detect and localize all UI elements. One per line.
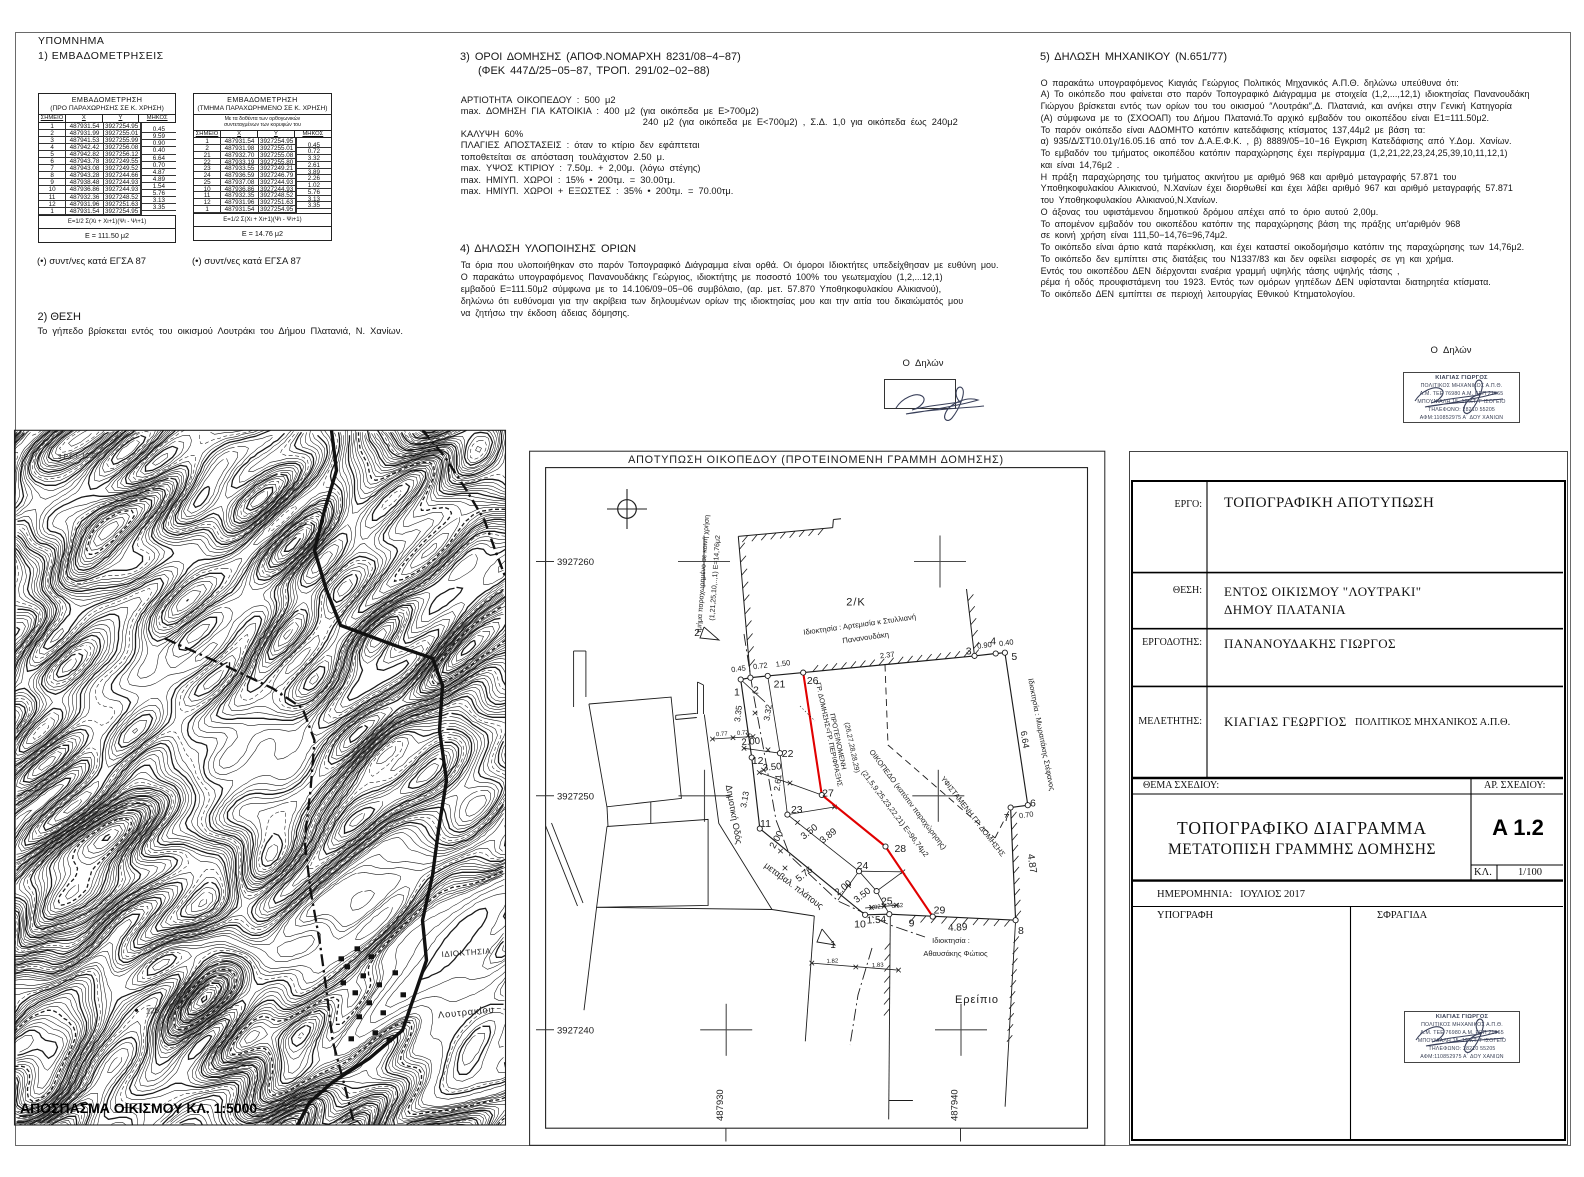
svg-text:2.61: 2.61 xyxy=(772,774,784,792)
svg-text:3927260: 3927260 xyxy=(557,557,594,568)
svg-text:Ερείπιο: Ερείπιο xyxy=(955,994,999,1006)
svg-text:0.72: 0.72 xyxy=(752,661,768,672)
svg-text:Λουτρακίου: Λουτρακίου xyxy=(437,1004,495,1021)
svg-text:3: 3 xyxy=(966,645,972,657)
svg-text:4.89: 4.89 xyxy=(948,922,968,934)
svg-text:0.45: 0.45 xyxy=(731,663,747,674)
svg-text:23: 23 xyxy=(791,804,803,816)
svg-text:3927250: 3927250 xyxy=(557,791,594,802)
svg-text:0.77: 0.77 xyxy=(716,731,729,738)
svg-text:Ιδιοκτησία :: Ιδιοκτησία : xyxy=(932,936,970,945)
svg-text:0.90: 0.90 xyxy=(977,640,993,651)
svg-text:8: 8 xyxy=(1018,925,1024,937)
svg-text:27: 27 xyxy=(822,788,834,800)
svg-text:9: 9 xyxy=(909,918,915,930)
svg-text:1.50: 1.50 xyxy=(775,658,791,669)
svg-text:3.50: 3.50 xyxy=(799,822,820,842)
svg-text:3927240: 3927240 xyxy=(557,1025,594,1036)
svg-text:1.83: 1.83 xyxy=(872,963,885,970)
svg-text:ΙΔΙΟΚΤΗΣΙΑ: ΙΔΙΟΚΤΗΣΙΑ xyxy=(441,947,491,959)
svg-text:28: 28 xyxy=(894,843,906,855)
svg-text:1: 1 xyxy=(830,940,836,951)
svg-text:4.87: 4.87 xyxy=(1025,853,1039,874)
svg-text:Ιδιοκτησία : Μωραιτάκης Στέφαν: Ιδιοκτησία : Μωραιτάκης Στέφανος xyxy=(1026,678,1057,792)
svg-text:10: 10 xyxy=(854,918,866,930)
svg-text:2.00: 2.00 xyxy=(833,878,854,898)
svg-text:2.00: 2.00 xyxy=(741,736,760,749)
svg-text:1.02: 1.02 xyxy=(869,904,882,911)
svg-text:3 P.Ε.Ι. 12.3: 3 P.Ε.Ι. 12.3 xyxy=(58,453,96,461)
svg-text:5: 5 xyxy=(1011,651,1017,663)
svg-text:21: 21 xyxy=(774,679,786,691)
svg-text:3.13: 3.13 xyxy=(738,790,751,808)
svg-text:Πανανουδάκη: Πανανουδάκη xyxy=(842,630,890,645)
svg-text:3.50: 3.50 xyxy=(852,886,873,906)
svg-text:6: 6 xyxy=(1030,797,1036,809)
svg-text:22: 22 xyxy=(782,748,794,760)
svg-text:2: 2 xyxy=(753,684,759,696)
svg-text:1: 1 xyxy=(734,686,740,698)
svg-text:2/Κ: 2/Κ xyxy=(846,597,866,609)
svg-text:Αθαυσάκης Φώτιος: Αθαυσάκης Φώτιος xyxy=(923,949,988,958)
svg-text:6.64: 6.64 xyxy=(1019,730,1032,749)
svg-text:125: 125 xyxy=(145,1006,159,1016)
svg-text:0.70: 0.70 xyxy=(1018,809,1034,820)
svg-text:3.35: 3.35 xyxy=(732,705,744,723)
svg-text:0.52: 0.52 xyxy=(891,903,904,910)
svg-text:3.32: 3.32 xyxy=(761,703,774,721)
svg-text:3.50: 3.50 xyxy=(762,761,781,774)
svg-text:487940: 487940 xyxy=(950,1089,961,1121)
svg-text:1.54: 1.54 xyxy=(866,914,886,926)
svg-text:2.37: 2.37 xyxy=(879,650,895,661)
svg-text:(1,21,25,10,..,1) Ε=14,76μ2: (1,21,25,10,..,1) Ε=14,76μ2 xyxy=(709,535,722,621)
svg-text:11: 11 xyxy=(760,818,771,830)
svg-text:1.82: 1.82 xyxy=(826,958,839,965)
svg-text:29: 29 xyxy=(934,904,946,916)
svg-text:7: 7 xyxy=(1004,812,1010,824)
svg-text:487930: 487930 xyxy=(715,1089,726,1121)
svg-text:2: 2 xyxy=(694,628,700,639)
svg-text:ΥΦΙΣΤΑΜΕΝΗ ΓΡ. ΔΟΜΗΣΗΣ: ΥΦΙΣΤΑΜΕΝΗ ΓΡ. ΔΟΜΗΣΗΣ xyxy=(939,775,1008,859)
svg-text:3.89: 3.89 xyxy=(818,826,839,846)
svg-text:μεταβαλ. πλάτους: μεταβαλ. πλάτους xyxy=(762,860,825,911)
svg-text:ΑΠΟΣΠΑΣΜΑ ΟΙΚΙΣΜΟΥ ΚΛ. 1:5000: ΑΠΟΣΠΑΣΜΑ ΟΙΚΙΣΜΟΥ ΚΛ. 1:5000 xyxy=(20,1100,257,1116)
svg-text:ΑΠΟΤΥΠΩΣΗ ΟΙΚΟΠΕΔΟΥ (ΠΡΟΤΕΙΝΟΜ: ΑΠΟΤΥΠΩΣΗ ΟΙΚΟΠΕΔΟΥ (ΠΡΟΤΕΙΝΟΜΕΝΗ ΓΡΑΜΜΗ… xyxy=(628,454,1004,466)
svg-text:24: 24 xyxy=(857,860,869,872)
svg-text:0.40: 0.40 xyxy=(998,637,1014,648)
